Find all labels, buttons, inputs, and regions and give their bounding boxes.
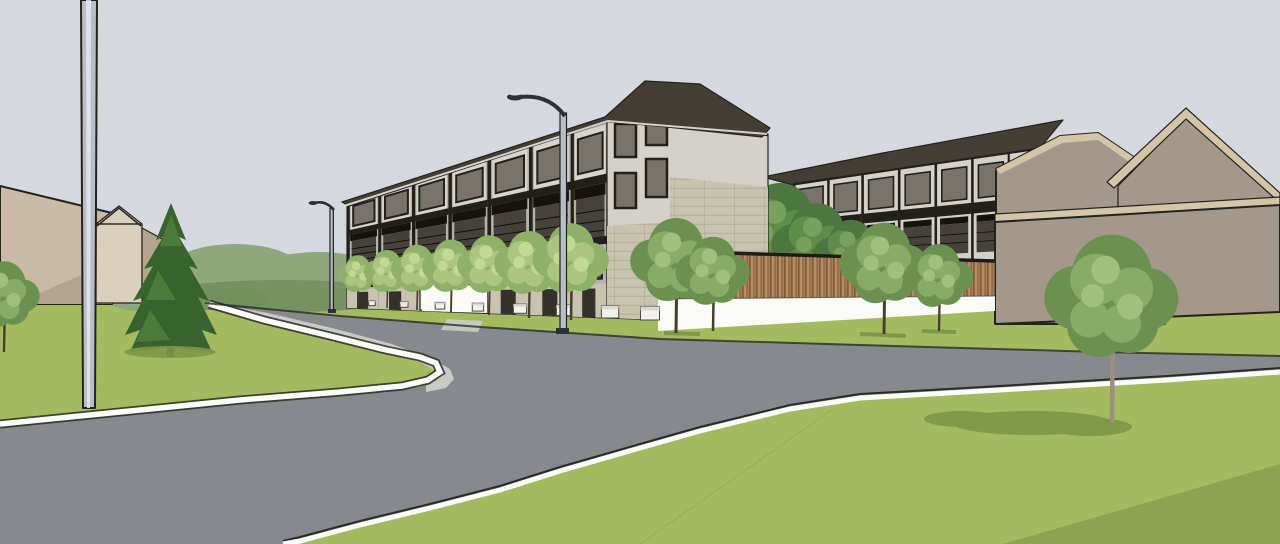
street-light-pole (560, 113, 567, 332)
tree-canopy (716, 270, 730, 284)
rendering-svg (0, 0, 1280, 544)
tree-canopy (380, 257, 390, 267)
tree-shadow-line (922, 331, 956, 332)
tree-canopy (442, 249, 454, 261)
tree-canopy (409, 253, 420, 264)
corner-window (615, 124, 636, 157)
tree-canopy (376, 267, 384, 275)
tree-canopy (513, 256, 525, 268)
facade-element (834, 182, 857, 213)
tree-canopy (1117, 294, 1143, 320)
facade-element (389, 291, 401, 310)
corner-window (615, 173, 636, 208)
planter-top (400, 302, 408, 304)
tree-canopy (803, 218, 822, 237)
planter-top (435, 302, 445, 304)
tree-canopy (518, 242, 533, 257)
tree-canopy (942, 274, 955, 287)
architectural-rendering-canvas (0, 0, 1280, 544)
tree-canopy (405, 264, 414, 273)
tree-canopy (662, 233, 681, 252)
tree-canopy (574, 257, 589, 272)
tree-shadow (1048, 418, 1132, 436)
planter-top (513, 304, 526, 307)
tree-canopy (871, 237, 890, 256)
tree-canopy (702, 249, 718, 265)
street-light-head-far (309, 201, 318, 205)
tree-shadow (924, 411, 1000, 427)
tree-canopy (438, 261, 448, 271)
tree-canopy (1081, 284, 1104, 307)
tree-canopy (864, 255, 879, 270)
facade-element (869, 177, 894, 210)
tree-canopy (655, 252, 671, 268)
tree-canopy (349, 270, 356, 277)
facade-element (542, 289, 557, 316)
planter-top (641, 307, 660, 311)
facade-element (578, 132, 603, 174)
tree-shadow-line (664, 333, 700, 334)
street-light-head-cap (509, 92, 522, 96)
utility-pole (81, 0, 97, 408)
tree-canopy (696, 264, 709, 277)
tree-canopy (887, 262, 904, 279)
tree-canopy (928, 255, 943, 270)
tree-canopy (479, 245, 492, 258)
tree-canopy (923, 269, 935, 281)
tree-canopy (7, 293, 21, 307)
tree-canopy (1091, 256, 1119, 284)
tree-shadow-line (860, 334, 906, 336)
tree-shadow (124, 346, 216, 358)
corner-window (646, 159, 667, 197)
street-light-base-far (328, 309, 336, 313)
planter-top (601, 306, 618, 309)
facade-element (905, 172, 930, 206)
tree-canopy (352, 262, 361, 271)
facade-element (942, 167, 967, 202)
tree-canopy (796, 237, 812, 253)
planter-top (369, 301, 376, 302)
street-light-pole-far (330, 208, 333, 312)
planter-top (472, 303, 483, 305)
facade-element (582, 289, 595, 318)
tree-canopy (474, 259, 485, 270)
street-light-base (556, 328, 569, 334)
